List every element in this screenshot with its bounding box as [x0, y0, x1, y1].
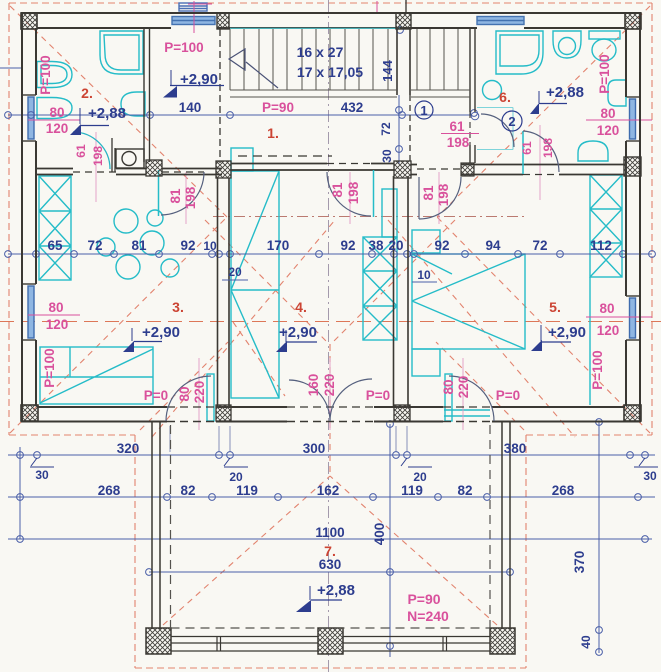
svg-text:81: 81	[131, 238, 147, 253]
svg-text:20: 20	[228, 265, 242, 279]
svg-text:300: 300	[303, 441, 326, 456]
svg-text:268: 268	[552, 483, 575, 498]
svg-text:80: 80	[600, 106, 615, 121]
svg-text:20: 20	[413, 470, 427, 484]
svg-text:80: 80	[48, 300, 63, 315]
svg-text:400: 400	[372, 523, 387, 546]
svg-text:5.: 5.	[549, 299, 561, 315]
svg-text:80: 80	[49, 105, 64, 120]
svg-text:30: 30	[380, 149, 394, 163]
svg-text:+2,90: +2,90	[142, 324, 180, 341]
svg-text:+2,88: +2,88	[317, 582, 355, 599]
svg-text:162: 162	[317, 483, 340, 498]
svg-text:P=0: P=0	[366, 388, 390, 403]
svg-text:6.: 6.	[499, 89, 511, 105]
svg-text:65: 65	[47, 238, 63, 253]
svg-text:120: 120	[46, 121, 69, 136]
svg-text:38: 38	[368, 238, 384, 253]
svg-text:1: 1	[420, 103, 427, 118]
svg-text:30: 30	[643, 469, 657, 483]
svg-text:80: 80	[441, 379, 456, 394]
svg-text:432: 432	[341, 100, 364, 115]
svg-text:198: 198	[541, 138, 555, 158]
svg-text:170: 170	[267, 238, 290, 253]
svg-text:144: 144	[380, 59, 395, 81]
svg-text:61: 61	[74, 144, 88, 158]
svg-text:220: 220	[456, 376, 471, 399]
svg-text:1100: 1100	[315, 525, 344, 540]
svg-text:380: 380	[504, 441, 527, 456]
svg-text:+2,90: +2,90	[548, 324, 586, 341]
svg-text:82: 82	[457, 483, 472, 498]
svg-text:220: 220	[322, 374, 337, 397]
svg-text:20: 20	[388, 238, 403, 253]
svg-text:P=100: P=100	[42, 348, 57, 387]
svg-text:72: 72	[532, 238, 547, 253]
svg-text:198: 198	[91, 146, 105, 166]
svg-text:140: 140	[179, 100, 202, 115]
svg-text:81: 81	[330, 182, 345, 198]
svg-text:94: 94	[485, 238, 501, 253]
svg-text:92: 92	[434, 238, 449, 253]
svg-text:P=100: P=100	[590, 350, 605, 389]
svg-text:16 x 27: 16 x 27	[297, 44, 344, 60]
svg-text:P=100: P=100	[597, 54, 612, 93]
svg-text:119: 119	[401, 483, 423, 498]
svg-text:120: 120	[597, 123, 620, 138]
svg-text:198: 198	[436, 183, 451, 206]
svg-text:61: 61	[449, 119, 465, 134]
svg-text:30: 30	[35, 468, 49, 482]
svg-text:198: 198	[346, 181, 361, 204]
svg-text:N=240: N=240	[407, 608, 449, 624]
svg-text:320: 320	[117, 441, 140, 456]
svg-text:10: 10	[203, 239, 217, 253]
svg-text:72: 72	[87, 238, 102, 253]
svg-text:17 x 17,05: 17 x 17,05	[297, 64, 363, 80]
svg-text:10: 10	[417, 268, 431, 282]
svg-text:P=90: P=90	[262, 100, 294, 115]
svg-text:80: 80	[177, 386, 192, 401]
svg-text:+2,88: +2,88	[546, 84, 584, 101]
svg-text:2.: 2.	[81, 85, 93, 101]
svg-text:61: 61	[520, 141, 534, 155]
svg-text:+2,90: +2,90	[279, 324, 317, 341]
svg-text:P=100: P=100	[164, 40, 203, 55]
svg-text:81: 81	[168, 188, 183, 204]
svg-text:+2,88: +2,88	[88, 105, 126, 122]
svg-text:P=100: P=100	[38, 55, 53, 94]
svg-text:72: 72	[379, 122, 393, 136]
svg-text:198: 198	[183, 186, 198, 209]
svg-text:119: 119	[236, 483, 258, 498]
svg-text:630: 630	[319, 557, 342, 572]
svg-text:1.: 1.	[267, 125, 279, 141]
svg-text:80: 80	[599, 301, 614, 316]
svg-text:82: 82	[180, 483, 195, 498]
svg-text:268: 268	[98, 483, 121, 498]
svg-text:81: 81	[421, 185, 436, 201]
svg-text:P=90: P=90	[407, 591, 440, 607]
svg-text:3.: 3.	[172, 299, 184, 315]
svg-text:P=0: P=0	[496, 388, 520, 403]
svg-text:160: 160	[306, 374, 321, 397]
svg-text:4.: 4.	[295, 299, 307, 315]
svg-text:198: 198	[447, 135, 470, 150]
svg-text:92: 92	[340, 238, 355, 253]
svg-text:20: 20	[229, 470, 243, 484]
svg-text:370: 370	[572, 551, 587, 574]
svg-text:2: 2	[508, 114, 515, 129]
svg-text:120: 120	[597, 323, 620, 338]
svg-text:P=0: P=0	[144, 388, 168, 403]
svg-text:112: 112	[590, 238, 612, 253]
svg-text:92: 92	[180, 238, 195, 253]
svg-text:120: 120	[46, 317, 69, 332]
svg-text:40: 40	[579, 635, 593, 649]
svg-text:220: 220	[192, 381, 207, 404]
